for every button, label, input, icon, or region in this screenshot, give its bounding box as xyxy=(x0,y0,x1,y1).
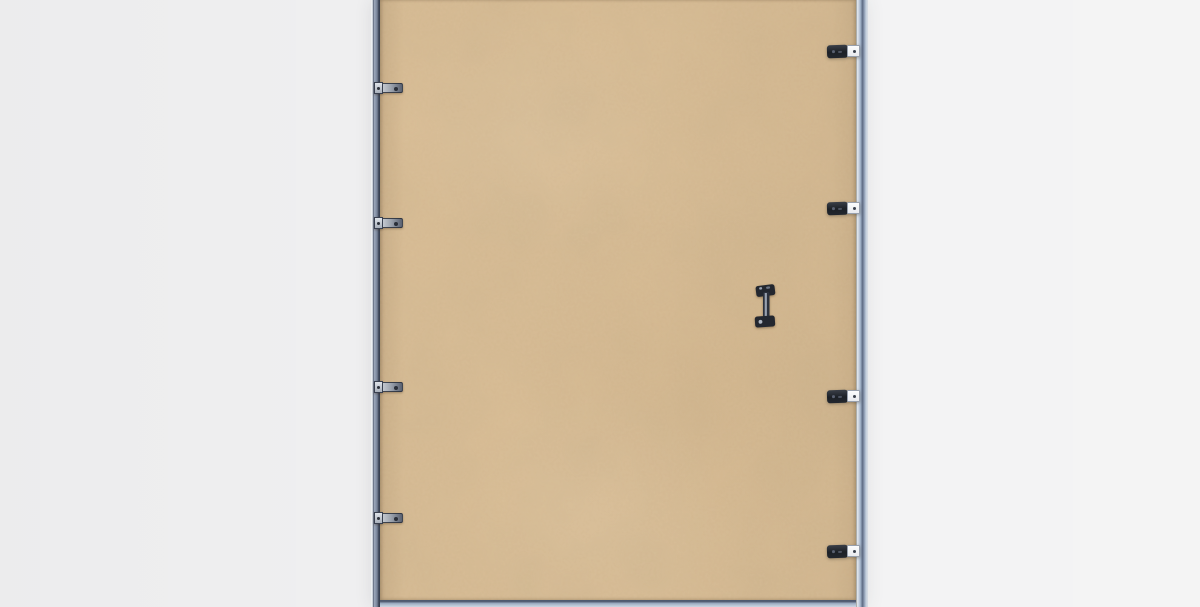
clip-highlight-icon xyxy=(832,395,835,398)
retainer-clip-right xyxy=(827,544,861,558)
clip-body xyxy=(827,44,848,58)
clip-body xyxy=(827,201,848,215)
retainer-clip-right xyxy=(827,201,861,215)
clip-highlight-icon xyxy=(832,550,835,553)
clip-spring-plate xyxy=(383,83,403,93)
clip-body xyxy=(827,389,848,403)
clip-highlight-icon xyxy=(832,50,835,53)
screw-icon xyxy=(853,207,856,210)
screw-icon xyxy=(394,87,398,91)
clip-highlight-icon xyxy=(838,395,842,397)
screw-icon xyxy=(394,222,398,226)
clip-edge-plate xyxy=(847,45,860,57)
retainer-clip-right xyxy=(827,44,861,58)
kraft-texture xyxy=(380,0,856,601)
clip-highlight-icon xyxy=(832,207,835,210)
clip-highlight-icon xyxy=(838,207,842,209)
retainer-clip-right xyxy=(827,389,861,403)
clip-spring-plate xyxy=(383,382,403,392)
frame-edge-right xyxy=(856,0,868,607)
clip-edge-bracket xyxy=(374,381,383,393)
clip-highlight-icon xyxy=(838,50,842,52)
clip-edge-bracket xyxy=(374,512,383,524)
clip-edge-bracket xyxy=(374,82,383,94)
clip-edge-bracket xyxy=(374,217,383,229)
clip-edge-plate xyxy=(847,545,860,557)
retainer-clip-left xyxy=(374,217,403,229)
clip-spring-plate xyxy=(383,513,403,523)
retainer-clip-left xyxy=(374,82,403,94)
frame-back xyxy=(371,0,868,607)
scene xyxy=(0,0,1200,607)
retainer-clip-left xyxy=(374,512,403,524)
clip-edge-plate xyxy=(847,202,860,214)
hanger-bracket-icon xyxy=(753,283,779,329)
backing-board xyxy=(380,0,856,601)
clip-spring-plate xyxy=(383,218,403,228)
clip-edge-plate xyxy=(847,390,860,402)
screw-icon xyxy=(394,386,398,390)
screw-icon xyxy=(853,395,856,398)
clip-highlight-icon xyxy=(838,550,842,552)
screw-icon xyxy=(853,50,856,53)
screw-icon xyxy=(394,517,398,521)
clip-body xyxy=(827,544,848,558)
retainer-clip-left xyxy=(374,381,403,393)
screw-icon xyxy=(853,550,856,553)
frame-edge-bottom xyxy=(371,600,868,607)
